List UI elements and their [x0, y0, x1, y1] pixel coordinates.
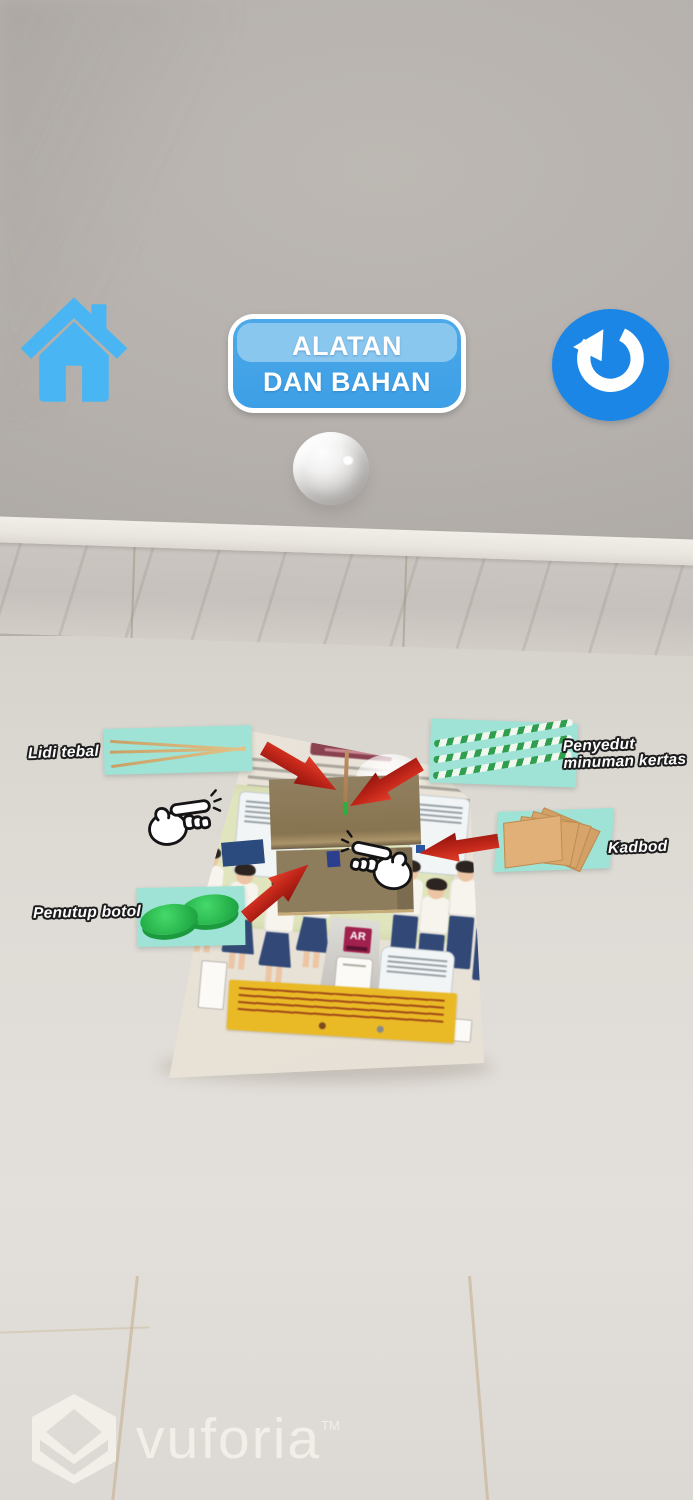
- bottle-cap-graphic: [138, 900, 200, 939]
- material-card-lidi: [103, 725, 252, 775]
- ar-camera-view: AR: [0, 0, 693, 1500]
- home-icon: [16, 295, 132, 404]
- label-penutup-botol: Penutup botol: [33, 903, 141, 922]
- tile-grout-line: [468, 1276, 541, 1500]
- label-lidi-tebal: Lidi tebal: [28, 743, 100, 762]
- small-sign: [198, 960, 228, 1010]
- reset-counterclockwise-icon: [566, 323, 655, 412]
- title-line-2: DAN BAHAN: [263, 364, 431, 400]
- label-kadbod: Kadbod: [608, 838, 668, 857]
- tap-hint-hand-icon: [139, 787, 230, 856]
- title-line-1: ALATAN: [292, 328, 402, 364]
- reset-button[interactable]: [552, 309, 669, 421]
- label-penyedut: Penyedut minuman kertas: [562, 734, 686, 772]
- tile-grout-line: [0, 1326, 150, 1333]
- material-card-straws: [429, 718, 578, 787]
- model-stick-tip: [343, 802, 348, 815]
- material-card-penutup: [136, 886, 245, 947]
- 3d-glass-sphere: [293, 432, 369, 505]
- vuforia-logo-icon: [30, 1393, 118, 1485]
- home-button[interactable]: [16, 295, 132, 399]
- material-card-kadbod: [494, 808, 614, 872]
- ar-badge: AR: [343, 926, 372, 953]
- vuforia-wordmark: vuforiaTM: [136, 1406, 340, 1472]
- trademark-symbol: TM: [321, 1418, 340, 1433]
- materials-title-button[interactable]: ALATAN DAN BAHAN: [228, 314, 466, 413]
- vuforia-watermark: vuforiaTM: [30, 1393, 340, 1485]
